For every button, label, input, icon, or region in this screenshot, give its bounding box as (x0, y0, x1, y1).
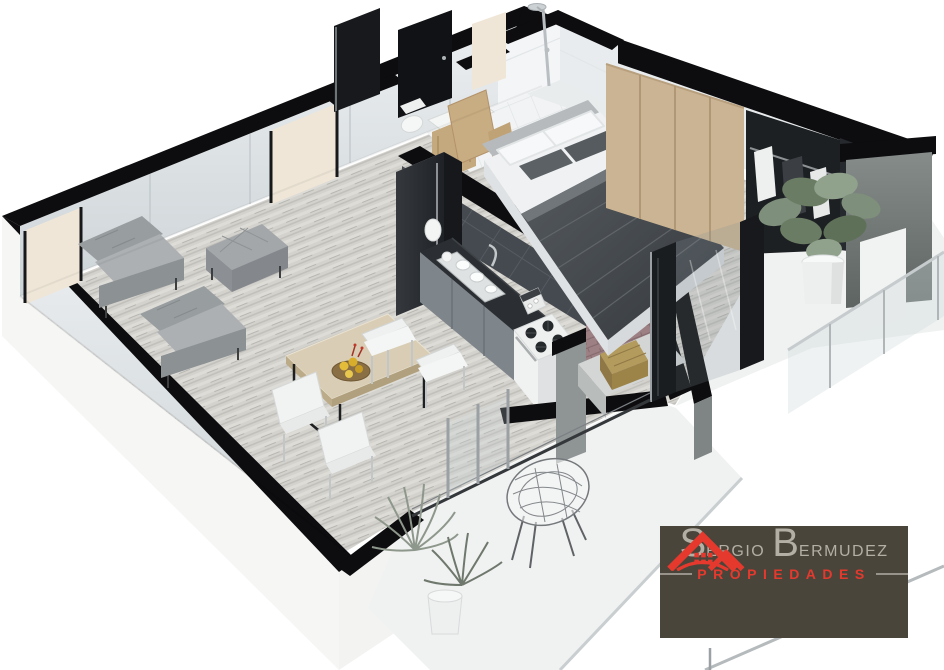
plant-pot (428, 590, 462, 634)
brand-initial-b: B (772, 521, 799, 565)
tagline-rule-left (660, 573, 692, 575)
tagline-rule-right (876, 573, 908, 575)
entry-side-panel (472, 12, 506, 90)
kettle (425, 219, 441, 241)
agency-logo: SERGIOBERMUDEZ PROPIEDADES (660, 526, 908, 638)
entry-door-panel (334, 8, 380, 112)
floor-plan-screenshot: SERGIOBERMUDEZ PROPIEDADES (0, 0, 944, 670)
house-icon (660, 531, 756, 571)
